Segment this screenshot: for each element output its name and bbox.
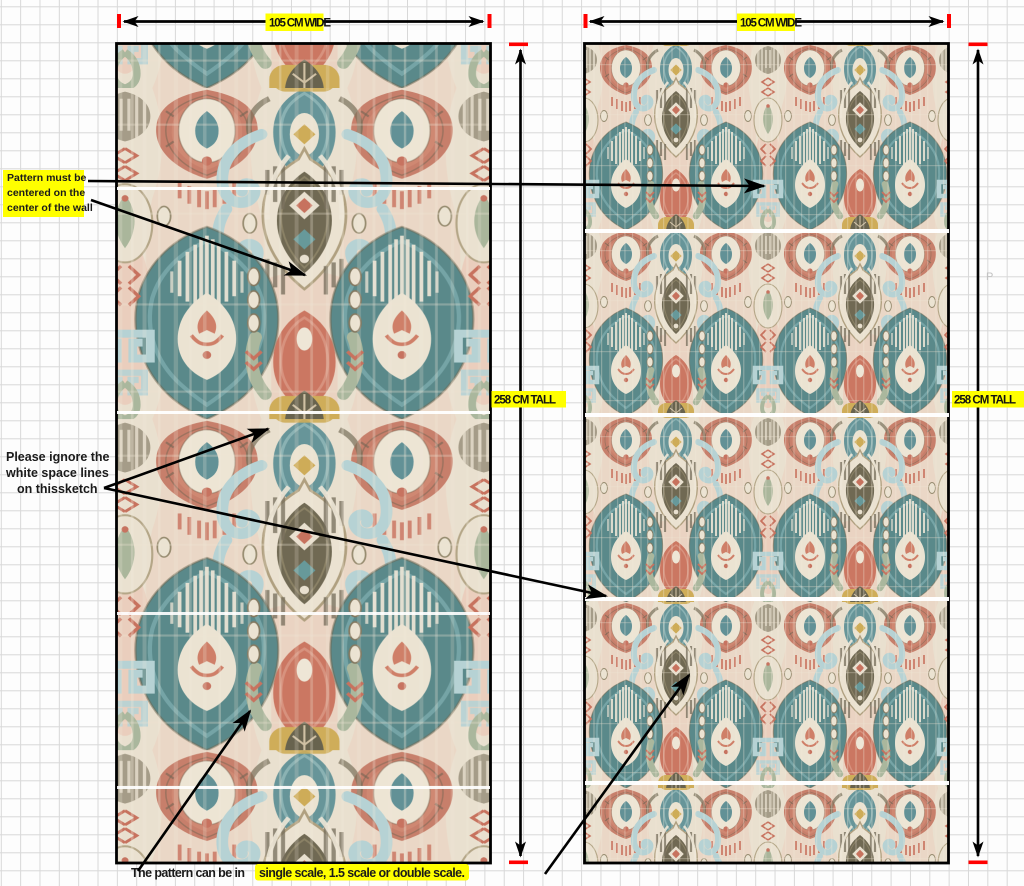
svg-text:centered on the: centered on the — [7, 187, 85, 199]
svg-text:Pattern must be: Pattern must be — [7, 172, 87, 184]
svg-text:258 CM TALL: 258 CM TALL — [494, 395, 556, 407]
svg-text:center of the wall: center of the wall — [7, 202, 93, 214]
svg-text:258 CM TALL: 258 CM TALL — [954, 395, 1016, 407]
svg-text:on thissketch: on thissketch — [17, 482, 98, 496]
svg-text:105 CM WIDE: 105 CM WIDE — [269, 18, 331, 30]
svg-text:P: P — [986, 271, 993, 283]
svg-text:white space lines: white space lines — [5, 466, 109, 480]
svg-text:single scale, 1.5 scale or dou: single scale, 1.5 scale or double scale. — [259, 866, 465, 880]
svg-text:The pattern can be in: The pattern can be in — [131, 866, 245, 880]
svg-text:105 CM WIDE: 105 CM WIDE — [740, 18, 802, 30]
svg-text:Please ignore the: Please ignore the — [6, 450, 110, 464]
